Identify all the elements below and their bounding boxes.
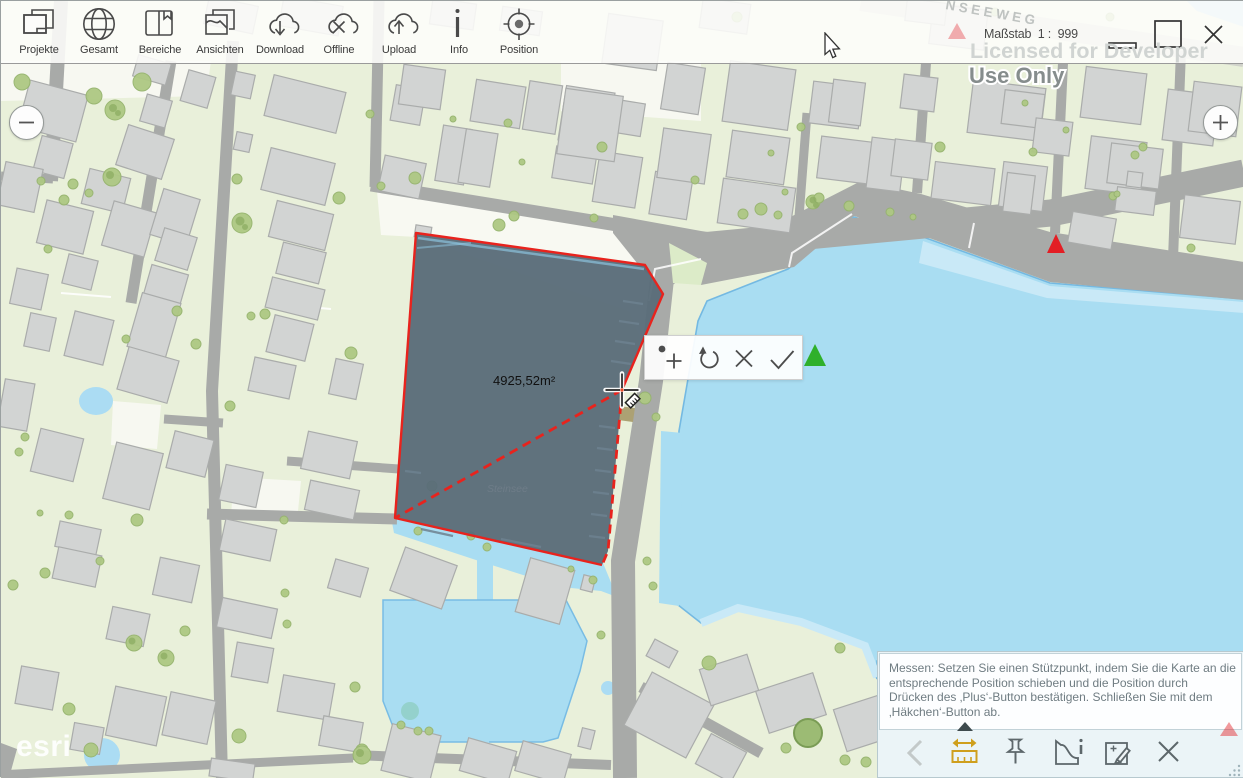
svg-text:Steinsee: Steinsee <box>487 483 528 495</box>
svg-text:4925,52m²: 4925,52m² <box>493 373 556 388</box>
